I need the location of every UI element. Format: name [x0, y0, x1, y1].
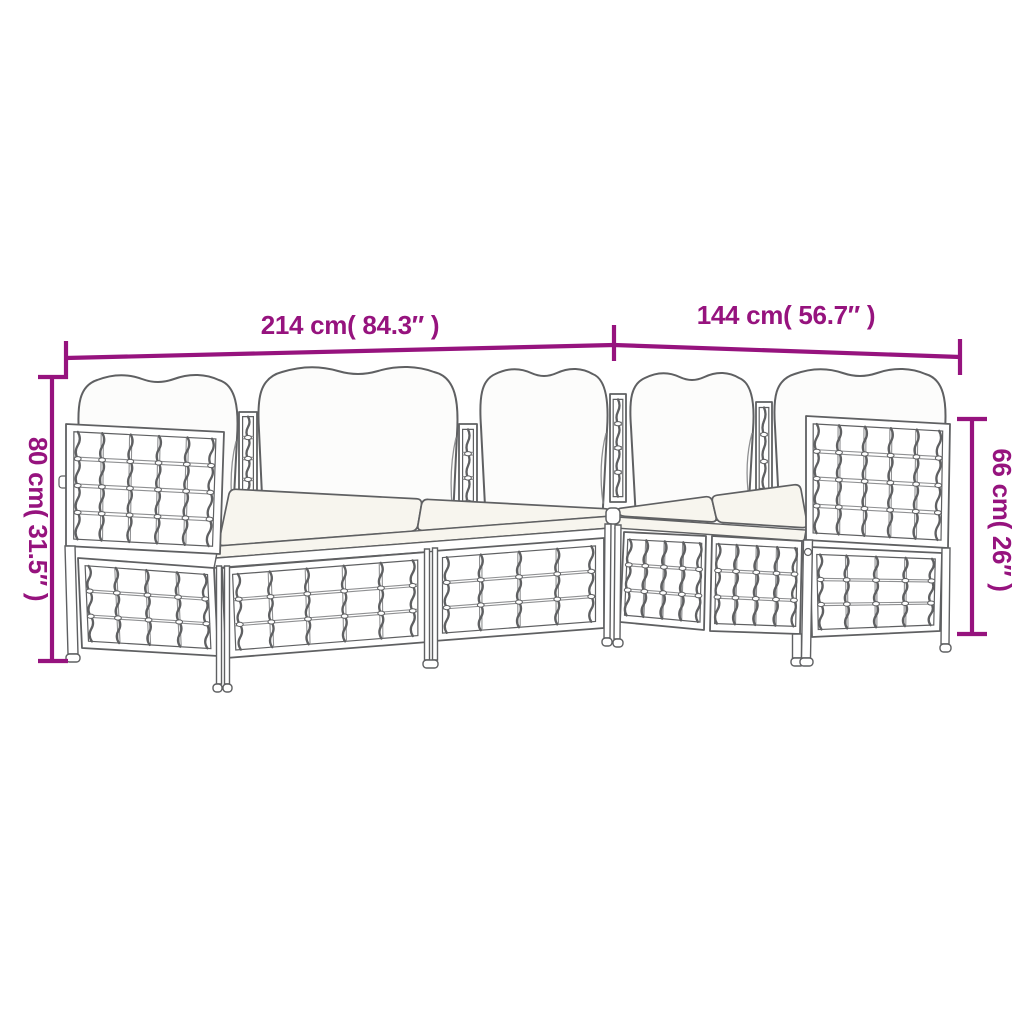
sofa-illustration [59, 367, 951, 692]
product-dimension-diagram: 214 cm( 84.3″ ) 144 cm( 56.7″ ) 80 cm( 3… [0, 0, 1024, 1024]
left-arm [59, 424, 224, 566]
dimension-line-width-right [614, 345, 960, 357]
wing-base [615, 517, 806, 666]
dimension-label-arm-height: 66 cm( 26″ ) [987, 448, 1017, 591]
diagram-canvas: 214 cm( 84.3″ ) 144 cm( 56.7″ ) 80 cm( 3… [0, 0, 1024, 1024]
dimension-label-wing-width: 144 cm( 56.7″ ) [697, 300, 876, 330]
dimension-label-back-height: 80 cm( 31.5″ ) [23, 437, 53, 601]
right-arm [800, 416, 951, 666]
dimension-line-width-left [66, 345, 614, 358]
dimension-label-total-width: 214 cm( 84.3″ ) [261, 310, 440, 340]
